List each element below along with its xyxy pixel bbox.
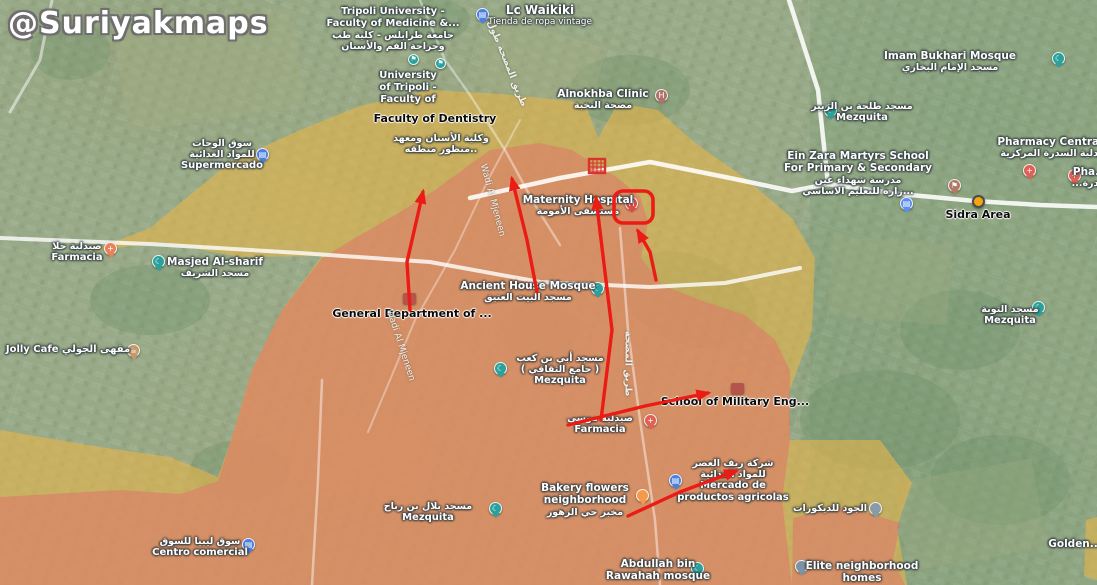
annotation-hatch-lines <box>589 159 605 173</box>
attack-arrow-6 <box>628 471 736 516</box>
attack-arrow-3 <box>596 198 612 420</box>
attack-arrow-5 <box>568 393 708 425</box>
attack-arrow-2 <box>512 179 537 292</box>
watermark: @Suriyakmaps <box>8 6 269 41</box>
map-canvas[interactable]: ▤⚑⚑H☾☾⚑▤++▤☾+☕☾☾☾+▤☾▤☾HTripoli Universit… <box>0 0 1097 585</box>
annotation-layer <box>0 0 1097 585</box>
attack-arrow-4 <box>638 231 656 280</box>
attack-arrow-1 <box>407 192 423 310</box>
annotation-highlight-rect <box>614 191 653 223</box>
